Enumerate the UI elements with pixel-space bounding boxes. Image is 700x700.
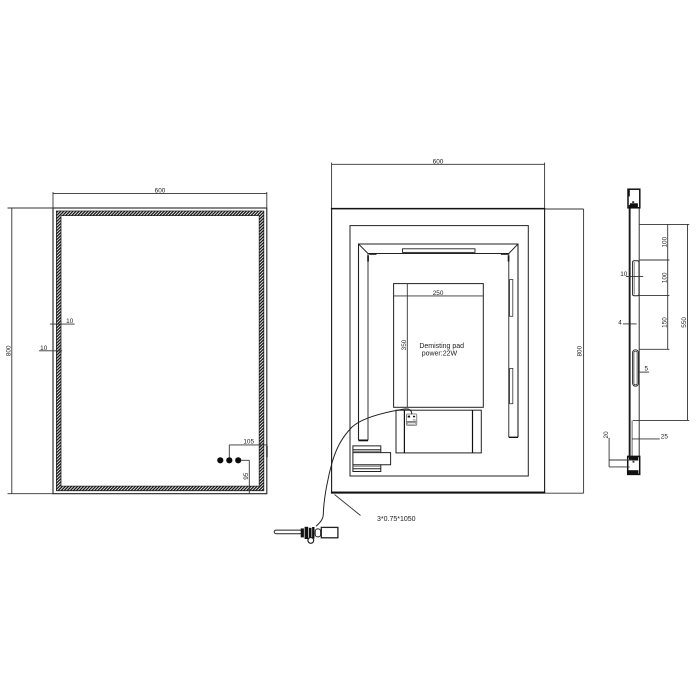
svg-text:150: 150 bbox=[661, 317, 668, 328]
svg-text:250: 250 bbox=[433, 290, 444, 297]
svg-text:600: 600 bbox=[433, 158, 444, 165]
svg-text:105: 105 bbox=[243, 439, 254, 446]
svg-text:10: 10 bbox=[40, 345, 48, 352]
svg-text:5: 5 bbox=[645, 366, 649, 373]
svg-text:25: 25 bbox=[661, 433, 669, 440]
svg-text:10: 10 bbox=[620, 271, 628, 278]
svg-text:10: 10 bbox=[66, 318, 74, 325]
svg-text:Demisting pad: Demisting pad bbox=[419, 343, 464, 350]
svg-text:600: 600 bbox=[155, 188, 166, 195]
svg-text:800: 800 bbox=[5, 345, 12, 356]
svg-text:100: 100 bbox=[661, 272, 668, 283]
svg-text:4: 4 bbox=[618, 320, 622, 327]
svg-text:800: 800 bbox=[577, 345, 584, 356]
svg-text:550: 550 bbox=[681, 317, 688, 328]
svg-text:3*0.75*1050: 3*0.75*1050 bbox=[377, 516, 416, 523]
svg-text:100: 100 bbox=[661, 236, 668, 247]
svg-text:power:22W: power:22W bbox=[422, 351, 458, 358]
svg-text:95: 95 bbox=[243, 472, 250, 480]
svg-text:350: 350 bbox=[401, 339, 408, 350]
svg-text:20: 20 bbox=[603, 431, 610, 439]
